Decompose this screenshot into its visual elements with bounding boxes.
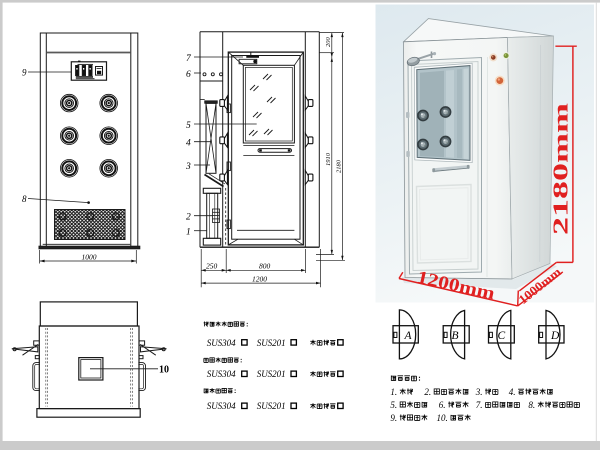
svg-text:1.: 1.	[390, 387, 397, 397]
svg-text:2.: 2.	[424, 387, 431, 397]
svg-text:9.: 9.	[390, 413, 397, 423]
svg-text:SUS201: SUS201	[257, 369, 286, 379]
svg-text:200: 200	[325, 37, 332, 48]
svg-text:SUS201: SUS201	[257, 401, 286, 411]
svg-text:4: 4	[186, 139, 191, 149]
svg-text:10: 10	[159, 365, 169, 376]
svg-text:8.: 8.	[528, 400, 535, 410]
svg-text:1: 1	[186, 228, 191, 238]
svg-text:D: D	[550, 330, 560, 342]
svg-text:5.: 5.	[390, 400, 397, 410]
svg-text:C: C	[498, 330, 506, 342]
svg-text:6.: 6.	[439, 400, 446, 410]
svg-text:SUS304: SUS304	[207, 369, 236, 379]
svg-text:SUS201: SUS201	[257, 338, 286, 348]
svg-text:A: A	[404, 330, 413, 342]
svg-text:7: 7	[186, 54, 192, 64]
svg-text:9: 9	[22, 68, 27, 78]
svg-text:SUS304: SUS304	[207, 338, 236, 348]
svg-text:2: 2	[186, 213, 191, 223]
svg-text:5: 5	[186, 121, 191, 131]
svg-text:8: 8	[22, 194, 27, 204]
svg-text:B: B	[452, 330, 459, 342]
svg-text:2180: 2180	[335, 159, 342, 173]
svg-text:6: 6	[186, 70, 191, 80]
svg-text:4.: 4.	[509, 387, 516, 397]
svg-text:3: 3	[185, 162, 191, 172]
svg-text:800: 800	[259, 262, 271, 271]
svg-text:2180mm: 2180mm	[549, 102, 573, 235]
svg-text:1910: 1910	[325, 152, 332, 166]
svg-text:1000: 1000	[82, 253, 97, 262]
svg-text:7.: 7.	[476, 400, 483, 410]
svg-text:250: 250	[206, 262, 218, 271]
svg-text:SUS304: SUS304	[207, 401, 236, 411]
svg-text:10.: 10.	[437, 413, 448, 423]
svg-text:1200: 1200	[252, 274, 267, 283]
svg-text:3.: 3.	[475, 387, 483, 397]
